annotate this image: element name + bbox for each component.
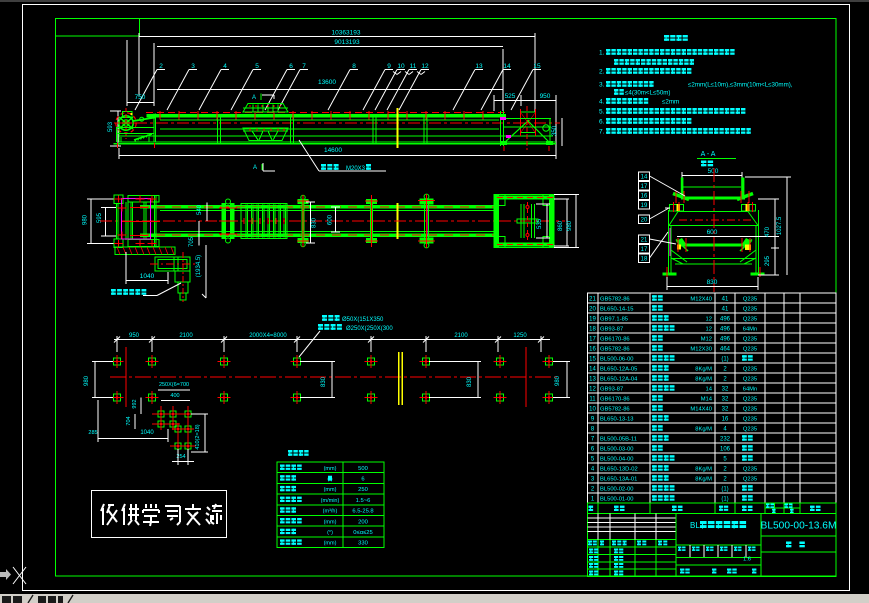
svg-text:2100: 2100: [179, 333, 193, 339]
svg-text:Q235: Q235: [743, 337, 757, 343]
svg-text:200: 200: [358, 519, 368, 525]
svg-text:(mm): (mm): [324, 541, 337, 547]
svg-text:8Kg/M: 8Kg/M: [695, 477, 712, 483]
svg-text:GB97.1-85: GB97.1-85: [600, 317, 628, 323]
svg-text:950: 950: [129, 333, 140, 339]
svg-text:330: 330: [358, 541, 368, 547]
svg-text:BL650-13D-02: BL650-13D-02: [600, 467, 638, 473]
svg-text:6.: 6.: [599, 119, 605, 126]
svg-text:5.: 5.: [599, 109, 605, 116]
svg-text:Q235: Q235: [743, 317, 757, 323]
svg-text:9013193: 9013193: [334, 39, 360, 46]
svg-text:(mm): (mm): [324, 487, 337, 493]
svg-text:18: 18: [589, 327, 596, 333]
svg-text:1040: 1040: [140, 430, 154, 436]
svg-text:8Kg/M: 8Kg/M: [695, 467, 712, 473]
svg-text:M12: M12: [701, 337, 712, 343]
svg-text:A: A: [253, 165, 257, 171]
svg-text:1.5~6: 1.5~6: [356, 498, 371, 504]
svg-text:21: 21: [589, 297, 596, 303]
svg-text:10363193: 10363193: [332, 30, 361, 37]
svg-text:250X(6=700: 250X(6=700: [159, 382, 189, 388]
svg-text:64Mn: 64Mn: [743, 327, 758, 333]
svg-text:16: 16: [641, 194, 648, 200]
svg-text:12: 12: [421, 63, 429, 70]
svg-text:M20X3: M20X3: [346, 166, 366, 172]
svg-text:BL650-13A-01: BL650-13A-01: [600, 477, 637, 483]
svg-text:BL500-04-00: BL500-04-00: [600, 457, 634, 463]
svg-text:2100: 2100: [454, 333, 468, 339]
svg-text:860: 860: [558, 220, 564, 231]
svg-text:M14: M14: [701, 397, 713, 403]
svg-text:2: 2: [159, 63, 163, 70]
svg-text:GB5782-86: GB5782-86: [600, 297, 630, 303]
svg-text:600: 600: [707, 229, 718, 236]
svg-text:Q235: Q235: [743, 417, 757, 423]
svg-text:GB93-87: GB93-87: [600, 327, 623, 333]
svg-text:13600: 13600: [318, 79, 336, 86]
svg-text:32: 32: [722, 407, 729, 413]
svg-text:3: 3: [191, 63, 195, 70]
svg-text:980: 980: [84, 375, 90, 386]
svg-text:20: 20: [589, 307, 596, 313]
svg-text:Q235: Q235: [743, 427, 757, 433]
svg-text:1250: 1250: [513, 333, 527, 339]
svg-text:470: 470: [765, 226, 771, 237]
svg-text:350: 350: [552, 125, 558, 136]
svg-text:BL650-12A-05: BL650-12A-05: [600, 367, 637, 373]
svg-text:≤2mm: ≤2mm: [662, 99, 679, 106]
svg-text:0≤α≤25: 0≤α≤25: [353, 530, 372, 536]
svg-text:7: 7: [302, 63, 306, 70]
svg-text:BL500-00-13.6M: BL500-00-13.6M: [761, 521, 837, 532]
svg-text:14: 14: [706, 387, 713, 393]
svg-text:Ø50X(151X350: Ø50X(151X350: [342, 317, 384, 323]
svg-text:496: 496: [720, 337, 731, 343]
svg-text:540: 540: [197, 204, 203, 215]
svg-text:Q235: Q235: [743, 347, 757, 353]
svg-text:14600: 14600: [324, 147, 342, 154]
svg-text:19: 19: [589, 317, 596, 323]
svg-text:593: 593: [108, 121, 114, 132]
svg-text:232: 232: [720, 437, 731, 443]
svg-text:41: 41: [722, 307, 729, 313]
svg-text:GB6170-86: GB6170-86: [600, 397, 630, 403]
svg-text:8Kg/M: 8Kg/M: [695, 367, 712, 373]
svg-text:106: 106: [720, 447, 731, 453]
svg-text:992: 992: [132, 399, 138, 408]
svg-text:(m/min): (m/min): [321, 498, 340, 504]
svg-text:≤2mm(L≤10m),≤3mm(10m<L≤30mm),: ≤2mm(L≤10m),≤3mm(10m<L≤30mm),: [688, 82, 793, 89]
svg-text:32: 32: [722, 387, 729, 393]
svg-text:4: 4: [223, 63, 227, 70]
svg-text:Q235: Q235: [743, 397, 757, 403]
svg-text:Q235: Q235: [743, 307, 757, 313]
svg-text:17: 17: [589, 337, 596, 343]
svg-text:496: 496: [720, 317, 731, 323]
svg-text:285: 285: [88, 430, 97, 436]
svg-text:(1): (1): [721, 357, 728, 363]
svg-text:18: 18: [641, 257, 648, 263]
svg-text:(1): (1): [721, 497, 728, 503]
svg-text:980: 980: [555, 375, 561, 386]
svg-text:GB6170-86: GB6170-86: [600, 337, 630, 343]
svg-text:496: 496: [720, 327, 731, 333]
svg-text:1027.5: 1027.5: [777, 216, 783, 235]
svg-text:830: 830: [312, 217, 318, 228]
svg-text:464: 464: [720, 347, 731, 353]
svg-text:295: 295: [765, 255, 771, 266]
svg-text:830: 830: [707, 279, 718, 286]
svg-text:M12X30: M12X30: [690, 347, 712, 353]
svg-text:BL650-13-13: BL650-13-13: [600, 417, 634, 423]
svg-text:A: A: [252, 95, 256, 101]
svg-text:11: 11: [410, 63, 417, 70]
svg-text:Q235: Q235: [743, 377, 757, 383]
svg-text:11: 11: [589, 397, 596, 403]
svg-text:1040: 1040: [140, 273, 155, 280]
svg-text:6: 6: [361, 477, 364, 483]
svg-text:17: 17: [641, 184, 648, 190]
svg-text:GB5782-86: GB5782-86: [600, 347, 630, 353]
svg-text:BL500-03-00: BL500-03-00: [600, 447, 634, 453]
svg-text:830: 830: [467, 376, 473, 387]
svg-text:BL500-02-00: BL500-02-00: [600, 487, 634, 493]
svg-text:≤4(30m<L≤50m): ≤4(30m<L≤50m): [625, 90, 670, 97]
svg-text:Q235: Q235: [743, 477, 757, 483]
svg-text:12: 12: [706, 317, 712, 323]
svg-text:BL650-14-15: BL650-14-15: [600, 307, 634, 313]
svg-text:7.: 7.: [599, 129, 605, 136]
svg-text:Ø250X(250X(300: Ø250X(250X(300: [346, 326, 393, 332]
svg-text:M12X40: M12X40: [690, 297, 712, 303]
svg-text:Q235: Q235: [743, 297, 757, 303]
svg-text:BL: BL: [690, 521, 700, 530]
svg-text:10: 10: [589, 407, 596, 413]
svg-text:500: 500: [708, 168, 719, 175]
svg-text:704: 704: [126, 416, 132, 425]
svg-text:(mm): (mm): [324, 466, 337, 472]
svg-text:1.: 1.: [599, 50, 605, 57]
svg-text:830: 830: [321, 376, 327, 387]
svg-text:980: 980: [83, 214, 89, 225]
svg-text:17: 17: [641, 247, 648, 253]
svg-text:1:6: 1:6: [743, 557, 751, 563]
svg-text:32: 32: [722, 397, 729, 403]
svg-text:12: 12: [706, 327, 712, 333]
svg-text:4.: 4.: [599, 99, 605, 106]
svg-text:(mm): (mm): [324, 519, 337, 525]
svg-text:20: 20: [641, 218, 648, 224]
svg-text:3.: 3.: [599, 82, 605, 89]
svg-text:(°): (°): [327, 530, 333, 536]
svg-text:8Kg/M: 8Kg/M: [695, 377, 712, 383]
svg-text:14: 14: [641, 175, 648, 181]
svg-text:950: 950: [540, 93, 551, 100]
svg-text:8: 8: [352, 63, 356, 70]
svg-text:(1934.5): (1934.5): [196, 255, 202, 277]
svg-text:Q235: Q235: [743, 367, 757, 373]
svg-text:13: 13: [589, 377, 596, 383]
svg-text:GB5782-86: GB5782-86: [600, 407, 630, 413]
svg-text:10: 10: [397, 63, 405, 70]
svg-text:535: 535: [537, 218, 543, 229]
svg-text:41: 41: [722, 297, 729, 303]
svg-text:525: 525: [505, 93, 516, 100]
svg-text:14: 14: [503, 63, 511, 70]
svg-text:(m³/h): (m³/h): [323, 509, 338, 515]
svg-text:(1): (1): [721, 487, 728, 493]
svg-text:705: 705: [189, 236, 195, 247]
svg-text:750: 750: [135, 94, 146, 101]
svg-text:Q235: Q235: [743, 467, 757, 473]
svg-text:2000X4=8000: 2000X4=8000: [249, 333, 287, 339]
svg-text:19: 19: [641, 203, 648, 209]
svg-text:Q235: Q235: [743, 407, 757, 413]
svg-text:M14X40: M14X40: [690, 407, 712, 413]
svg-text:15: 15: [589, 357, 596, 363]
svg-text:BL650-12A-04: BL650-12A-04: [600, 377, 638, 383]
svg-text:9: 9: [387, 63, 391, 70]
svg-text:14: 14: [589, 367, 596, 373]
svg-text:250: 250: [358, 487, 368, 493]
svg-text:5: 5: [255, 63, 259, 70]
svg-text:GB93-87: GB93-87: [600, 387, 623, 393]
svg-text:BL500-06-00: BL500-06-00: [600, 357, 634, 363]
svg-text:A - A: A - A: [701, 151, 716, 158]
svg-text:64Mn: 64Mn: [743, 387, 758, 393]
svg-text:12: 12: [589, 387, 596, 393]
svg-text:16: 16: [722, 417, 729, 423]
svg-text:21: 21: [641, 238, 648, 244]
svg-text:2.: 2.: [599, 69, 605, 76]
svg-text:8Kg/M: 8Kg/M: [695, 427, 712, 433]
svg-text:16: 16: [589, 347, 596, 353]
svg-text:BL500-01-00: BL500-01-00: [600, 497, 634, 503]
svg-text:500: 500: [358, 466, 368, 472]
svg-text:980: 980: [567, 220, 573, 231]
svg-text:400: 400: [170, 393, 179, 399]
svg-text:6.5-25.8: 6.5-25.8: [352, 509, 373, 515]
svg-text:BL500-05B-11: BL500-05B-11: [600, 437, 637, 443]
svg-text:6: 6: [289, 63, 293, 70]
svg-text:13: 13: [475, 63, 483, 70]
svg-text:600: 600: [328, 214, 334, 225]
svg-text:410(2=18): 410(2=18): [195, 424, 201, 449]
svg-text:15: 15: [533, 63, 541, 70]
